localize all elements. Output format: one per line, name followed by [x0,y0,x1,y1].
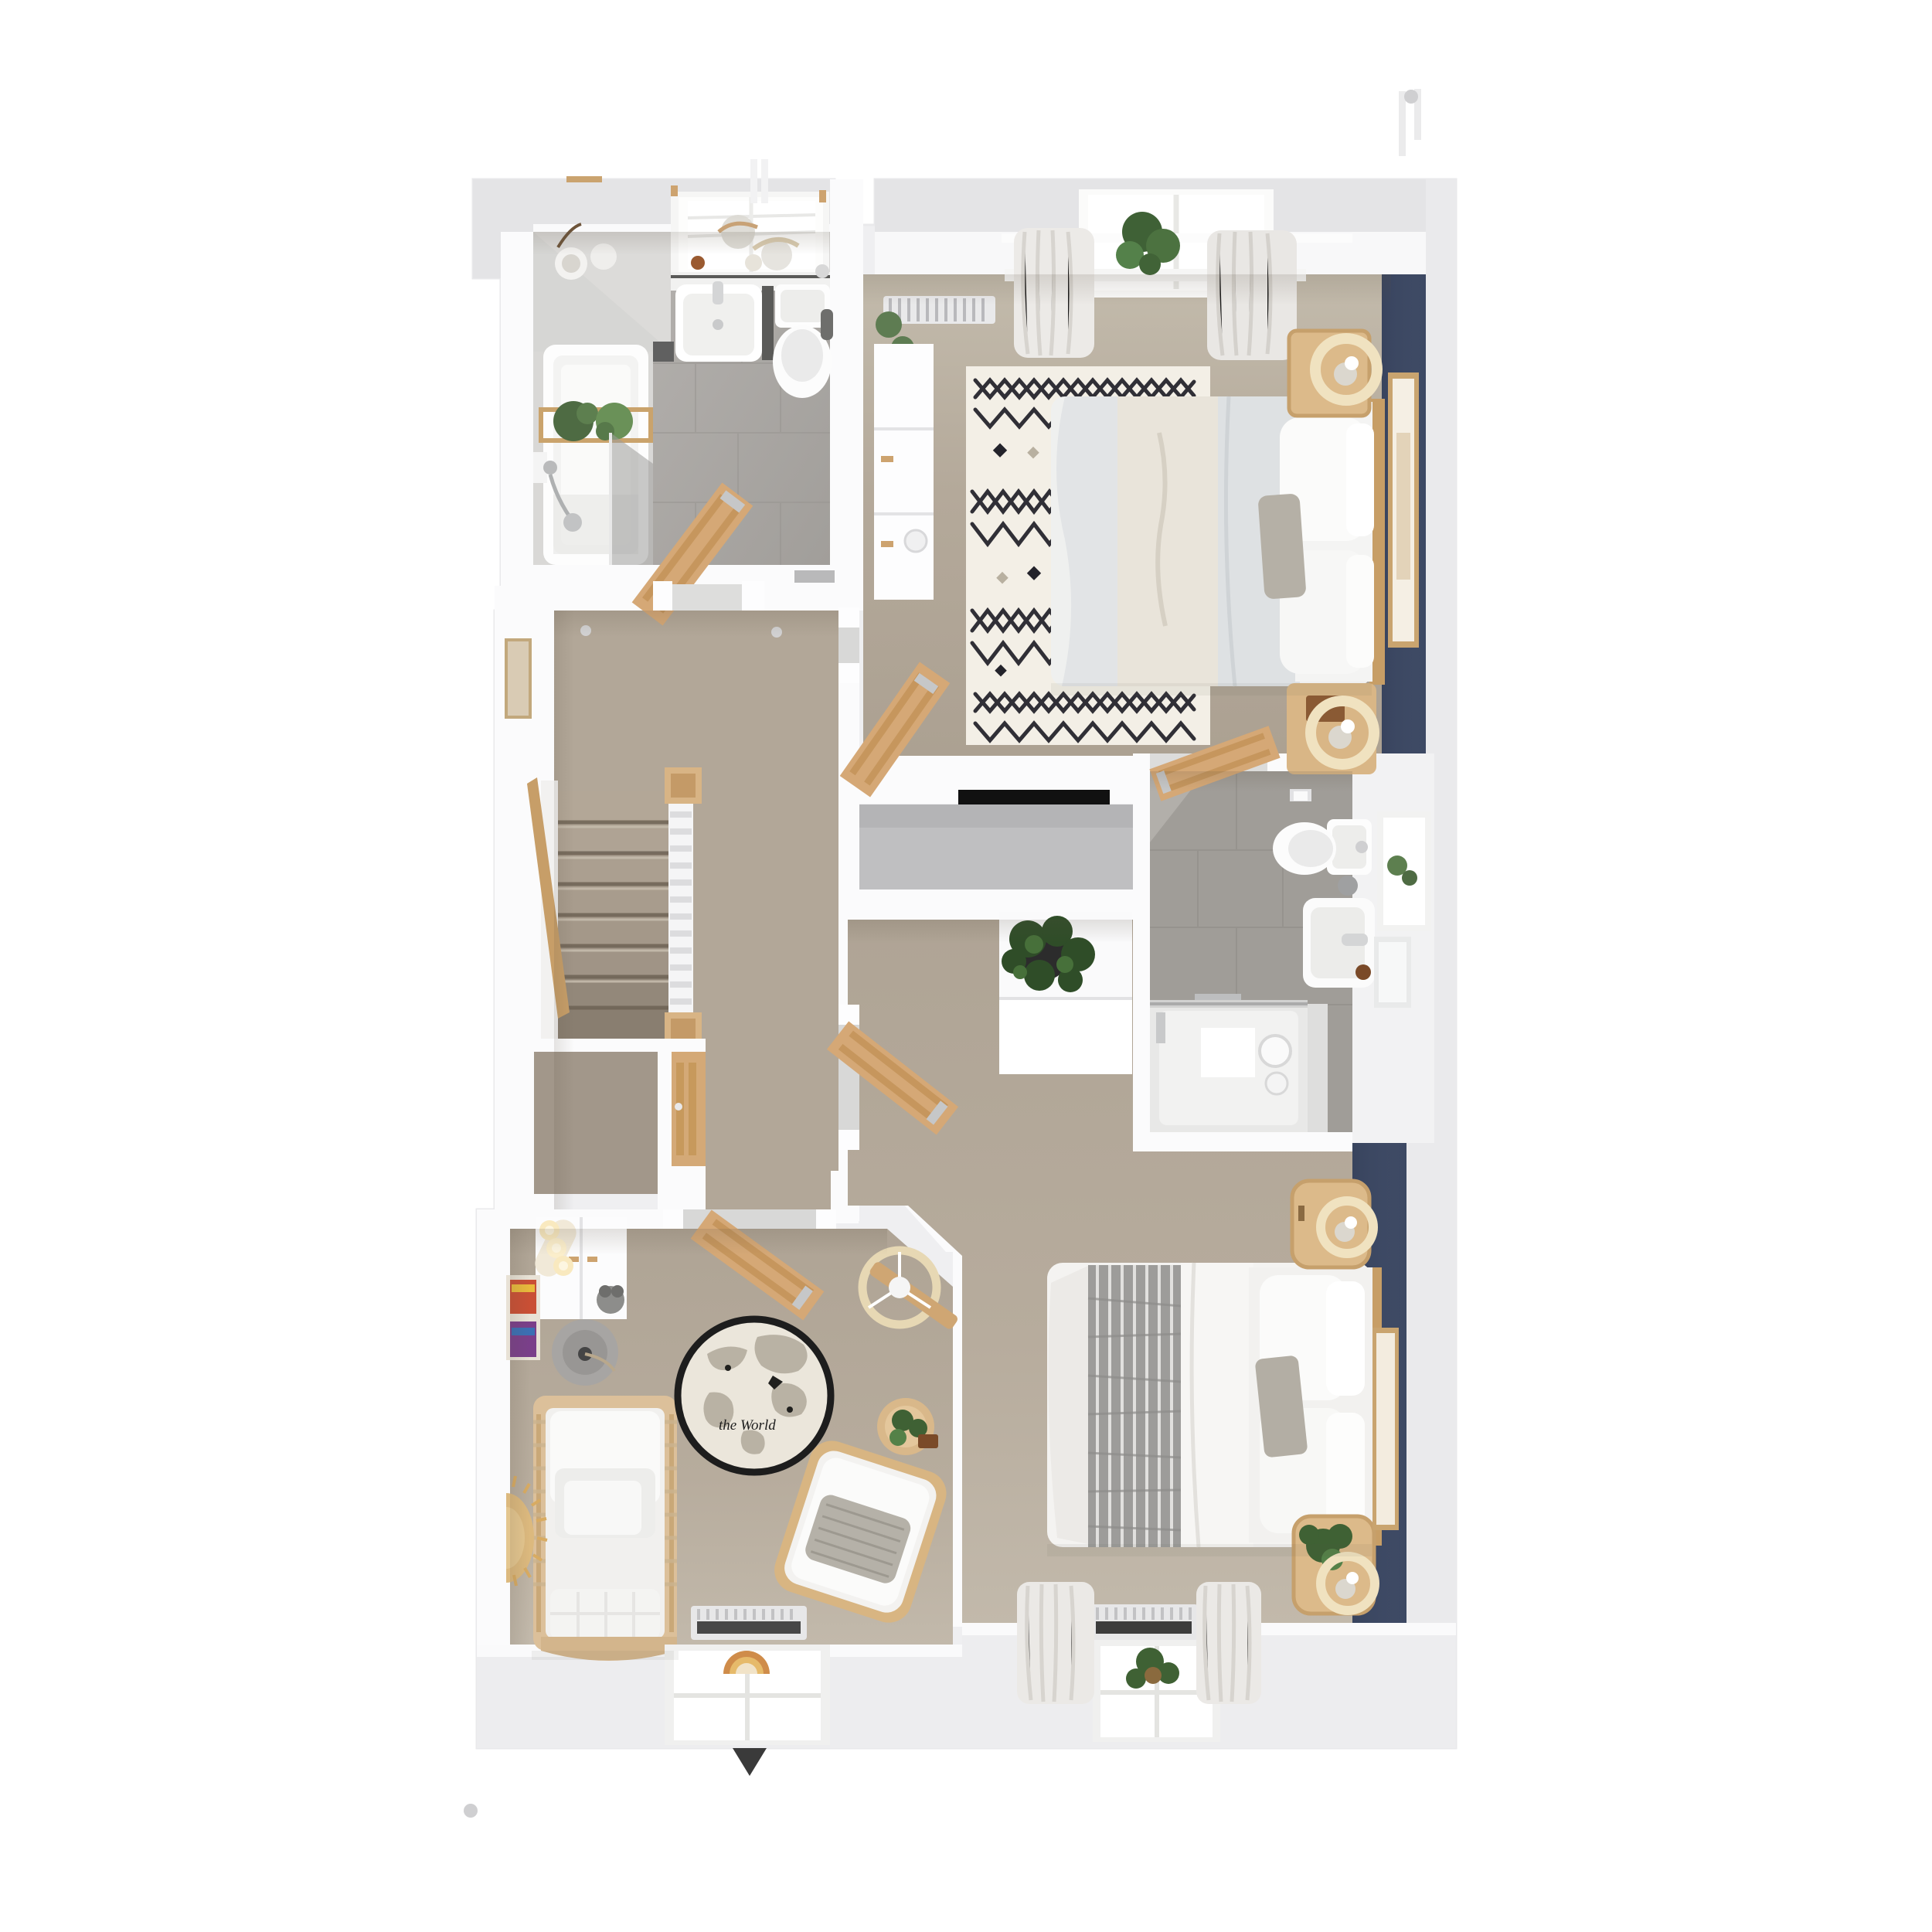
svg-text:the World: the World [719,1417,776,1434]
